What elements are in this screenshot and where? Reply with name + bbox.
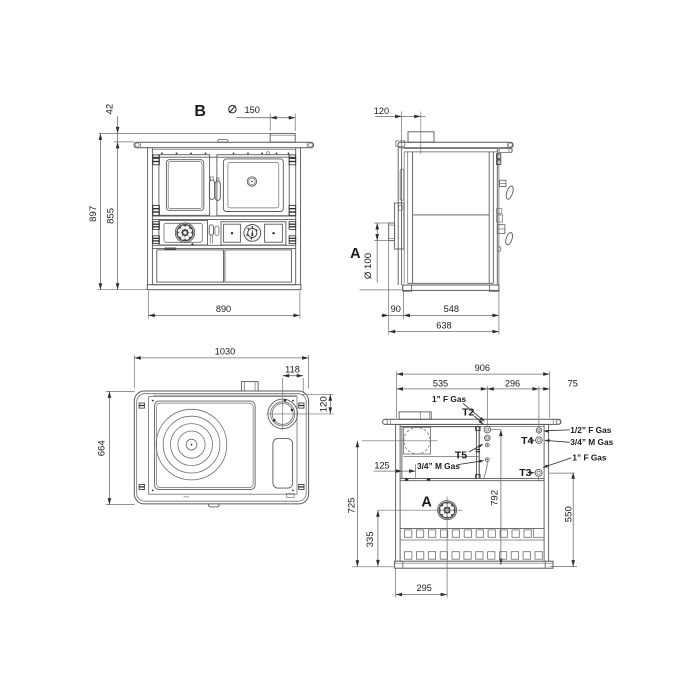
svg-text:897: 897	[88, 206, 99, 222]
svg-text:1” F Gas: 1” F Gas	[572, 453, 607, 463]
svg-text:42: 42	[105, 104, 116, 115]
svg-text:T5: T5	[455, 450, 467, 462]
svg-text:792: 792	[489, 490, 500, 506]
svg-text:664: 664	[96, 440, 107, 457]
svg-text:295: 295	[417, 583, 432, 593]
svg-text:725: 725	[346, 497, 357, 513]
svg-text:550: 550	[564, 506, 575, 522]
svg-text:1030: 1030	[215, 347, 235, 357]
svg-text:548: 548	[444, 304, 459, 314]
svg-text:638: 638	[436, 320, 451, 330]
svg-text:335: 335	[365, 531, 376, 547]
svg-text:3/4” M Gas: 3/4” M Gas	[570, 437, 613, 447]
svg-text:Ø 100: Ø 100	[363, 253, 374, 279]
svg-text:75: 75	[568, 378, 578, 388]
svg-text:118: 118	[285, 365, 300, 375]
svg-text:90: 90	[391, 304, 401, 314]
svg-text:855: 855	[106, 208, 117, 224]
svg-text:120: 120	[319, 396, 330, 412]
svg-text:535: 535	[433, 378, 448, 388]
svg-text:890: 890	[216, 304, 231, 314]
svg-text:125: 125	[374, 461, 389, 471]
svg-text:1/2” F Gas: 1/2” F Gas	[570, 425, 611, 435]
svg-text:A: A	[421, 494, 432, 510]
svg-text:150: 150	[245, 105, 260, 115]
svg-text:3/4” M Gas: 3/4” M Gas	[417, 461, 460, 471]
svg-text:1” F Gas: 1” F Gas	[432, 394, 467, 404]
svg-text:T3: T3	[519, 467, 531, 479]
svg-text:296: 296	[505, 378, 520, 388]
svg-text:120: 120	[374, 106, 389, 116]
svg-text:B: B	[194, 103, 206, 120]
svg-text:906: 906	[475, 363, 490, 373]
svg-text:A: A	[350, 246, 361, 262]
